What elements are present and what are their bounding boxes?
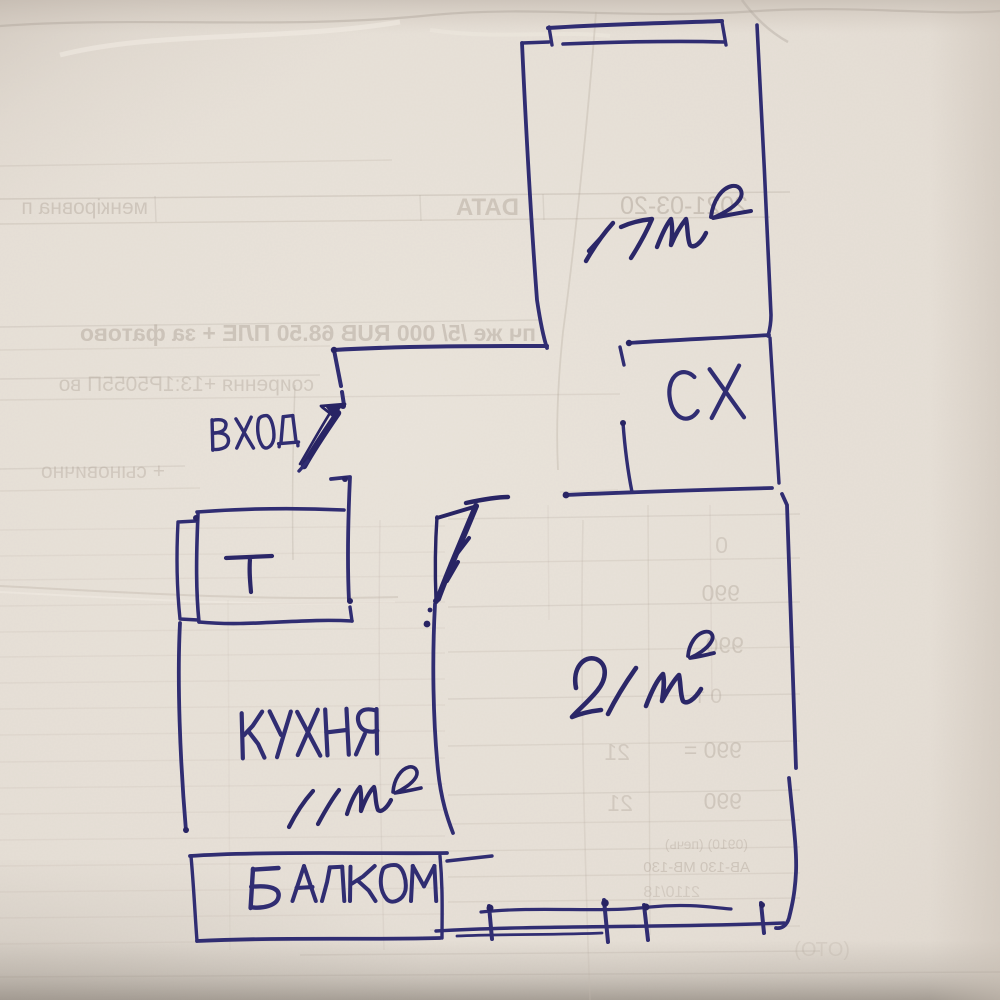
svg-text:АВ-130 МВ-130: АВ-130 МВ-130 — [643, 859, 750, 876]
svg-text:соирення +13:1Р5055П во: соирення +13:1Р5055П во — [59, 373, 314, 396]
svg-text:0 т: 0 т — [694, 685, 722, 708]
svg-text:990: 990 — [702, 580, 740, 606]
svg-text:(ОТО): (ОТО) — [794, 939, 850, 961]
svg-text:+ сыновично: + сыновично — [41, 460, 165, 483]
svg-text:DATA: DATA — [456, 194, 519, 221]
svg-text:0: 0 — [715, 532, 728, 558]
svg-text:21: 21 — [607, 790, 633, 816]
svg-text:21: 21 — [604, 739, 630, 765]
svg-text:990: 990 — [704, 788, 742, 814]
svg-text:менкіровна п: менкіровна п — [21, 196, 148, 219]
svg-text:пч же /5/ 000 RUB 68.50 ПЛЕ +: пч же /5/ 000 RUB 68.50 ПЛЕ + за фатово — [80, 320, 536, 346]
svg-text:990 =: 990 = — [684, 737, 742, 763]
svg-text:2110/18: 2110/18 — [643, 884, 700, 901]
svg-text:(0910) (печь): (0910) (печь) — [665, 836, 748, 852]
